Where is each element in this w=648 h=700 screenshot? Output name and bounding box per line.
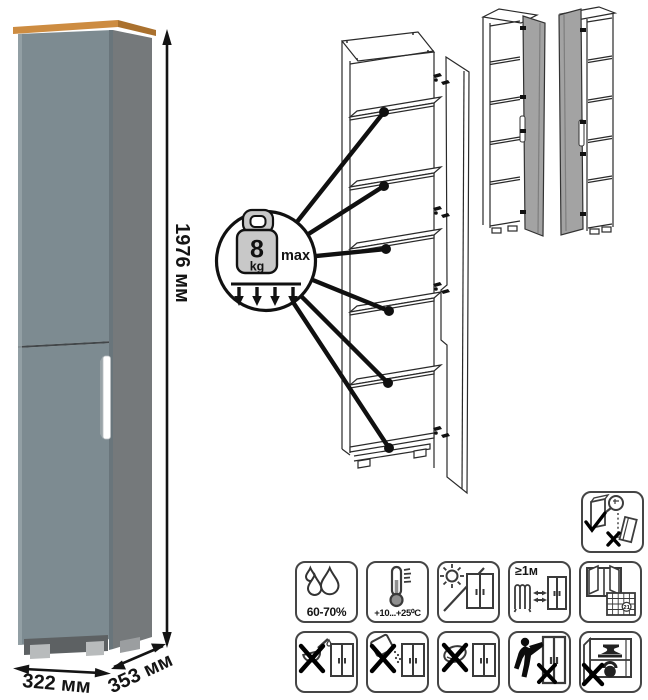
temperature-label: +10...+25⁰C <box>368 608 427 619</box>
furniture-spec-sheet: 1976 мм 322 мм 353 мм <box>0 0 648 700</box>
wardrobe-glyph <box>402 644 424 676</box>
icon-anchor-to-wall <box>581 491 644 553</box>
person-glyph <box>514 638 544 678</box>
heat-distance-label: ≥1м <box>515 564 538 578</box>
diagram-shelves <box>350 97 441 452</box>
width-dimension-label: 322 мм <box>21 670 91 698</box>
wardrobe-glyph <box>548 577 566 609</box>
icon-no-liquids <box>295 631 358 693</box>
open-window-calendar-icon: 21 <box>581 563 639 620</box>
powder-dots <box>394 651 401 663</box>
door-left-highlight <box>18 34 22 645</box>
window-sash-right <box>610 566 619 594</box>
variant-a-door <box>523 16 545 236</box>
x-mark <box>608 533 619 545</box>
radiator-glyph <box>515 585 531 612</box>
shelf-diagram <box>342 32 469 493</box>
ladle-x-wardrobe-icon <box>297 633 355 690</box>
powder-box-x-icon <box>368 633 426 690</box>
load-unit: kg <box>250 260 265 274</box>
icon-no-direct-sunlight <box>437 561 500 623</box>
calendar-glyph: 21 <box>607 593 635 615</box>
overload-anvil-x-icon <box>581 633 639 690</box>
diagram-top-face <box>342 32 434 61</box>
variant-diagram-door-left <box>559 7 615 235</box>
calendar-day: 21 <box>623 605 630 611</box>
icon-do-not-drag <box>508 631 571 693</box>
icon-temperature: +10...+25⁰C <box>366 561 429 623</box>
door-right-shade <box>109 30 113 650</box>
variant-diagram-door-right <box>483 9 545 236</box>
height-arrowhead-top <box>162 29 171 45</box>
cabinet-foot-left <box>30 644 50 659</box>
sun-slash-wardrobe-icon <box>439 563 497 620</box>
diagram-open-door <box>441 57 469 493</box>
person-dragging-x-icon <box>510 633 568 690</box>
callout-dots <box>379 107 394 453</box>
icon-humidity: 60-70% <box>295 561 358 623</box>
window-sash-left <box>589 566 598 594</box>
cabinet-upper-door <box>18 30 113 346</box>
sponge-x-wardrobe-icon <box>439 633 497 690</box>
cabinet-lower-door <box>18 343 113 645</box>
handle-recess <box>100 356 103 439</box>
wardrobe-glyph <box>331 644 353 676</box>
load-max-label: max <box>281 248 310 264</box>
magnifier-icon <box>609 496 623 510</box>
variant-a-shelves <box>490 57 520 185</box>
wardrobe-glyph <box>473 644 495 676</box>
cabinet-side-panel <box>113 30 152 649</box>
height-dimension: 1976 мм <box>162 29 193 648</box>
depth-dimension: 353 мм <box>105 644 176 699</box>
variant-b-shelves <box>588 56 612 183</box>
humidity-label: 60-70% <box>297 605 356 619</box>
cabinet-handle <box>103 356 111 439</box>
icon-no-wet-cleaning <box>437 631 500 693</box>
icon-do-not-overload <box>579 631 642 693</box>
distance-arrows <box>533 591 547 603</box>
icon-heat-distance: ≥1м <box>508 561 571 623</box>
height-dimension-label: 1976 мм <box>171 223 193 303</box>
icon-ventilation: 21 <box>579 561 642 623</box>
diagram-bottom-left-edge <box>342 449 350 455</box>
icon-no-abrasive-powder <box>366 631 429 693</box>
cabinet-foot-right <box>86 641 104 656</box>
shelf-load-callout: 8 kg max <box>217 107 395 453</box>
thermometer-ticks <box>404 569 411 582</box>
anchor-to-wall-icon <box>583 493 641 550</box>
tilting-cabinet <box>620 517 637 542</box>
wardrobe-glyph <box>467 574 493 608</box>
cabinet-render <box>13 20 156 659</box>
